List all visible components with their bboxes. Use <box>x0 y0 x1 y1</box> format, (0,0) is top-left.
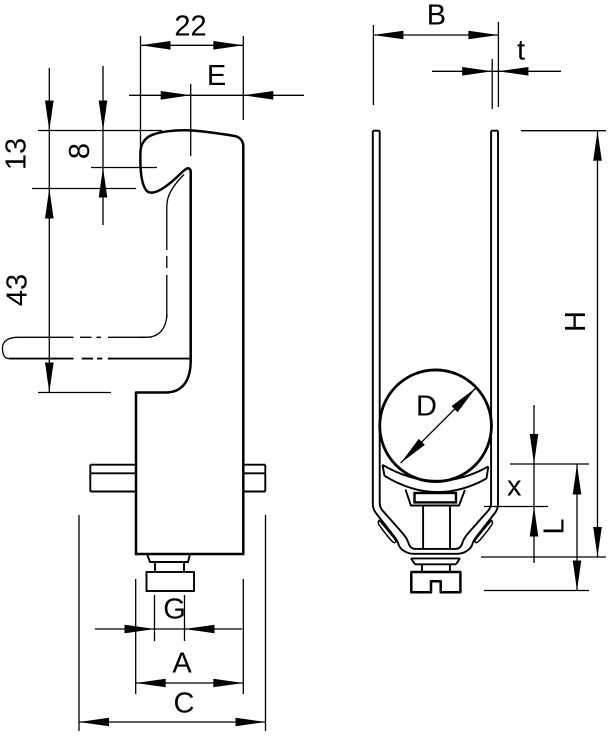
svg-text:B: B <box>427 0 446 32</box>
svg-text:D: D <box>416 391 437 423</box>
svg-text:13: 13 <box>1 138 33 170</box>
svg-text:H: H <box>560 311 592 332</box>
svg-text:43: 43 <box>2 274 34 306</box>
svg-text:x: x <box>507 471 522 503</box>
svg-text:8: 8 <box>64 143 96 159</box>
svg-text:G: G <box>163 594 186 626</box>
svg-text:A: A <box>172 648 192 680</box>
svg-text:C: C <box>174 688 195 720</box>
svg-text:E: E <box>207 60 226 92</box>
svg-text:t: t <box>517 35 525 67</box>
svg-text:L: L <box>539 518 571 534</box>
svg-text:22: 22 <box>174 11 206 43</box>
